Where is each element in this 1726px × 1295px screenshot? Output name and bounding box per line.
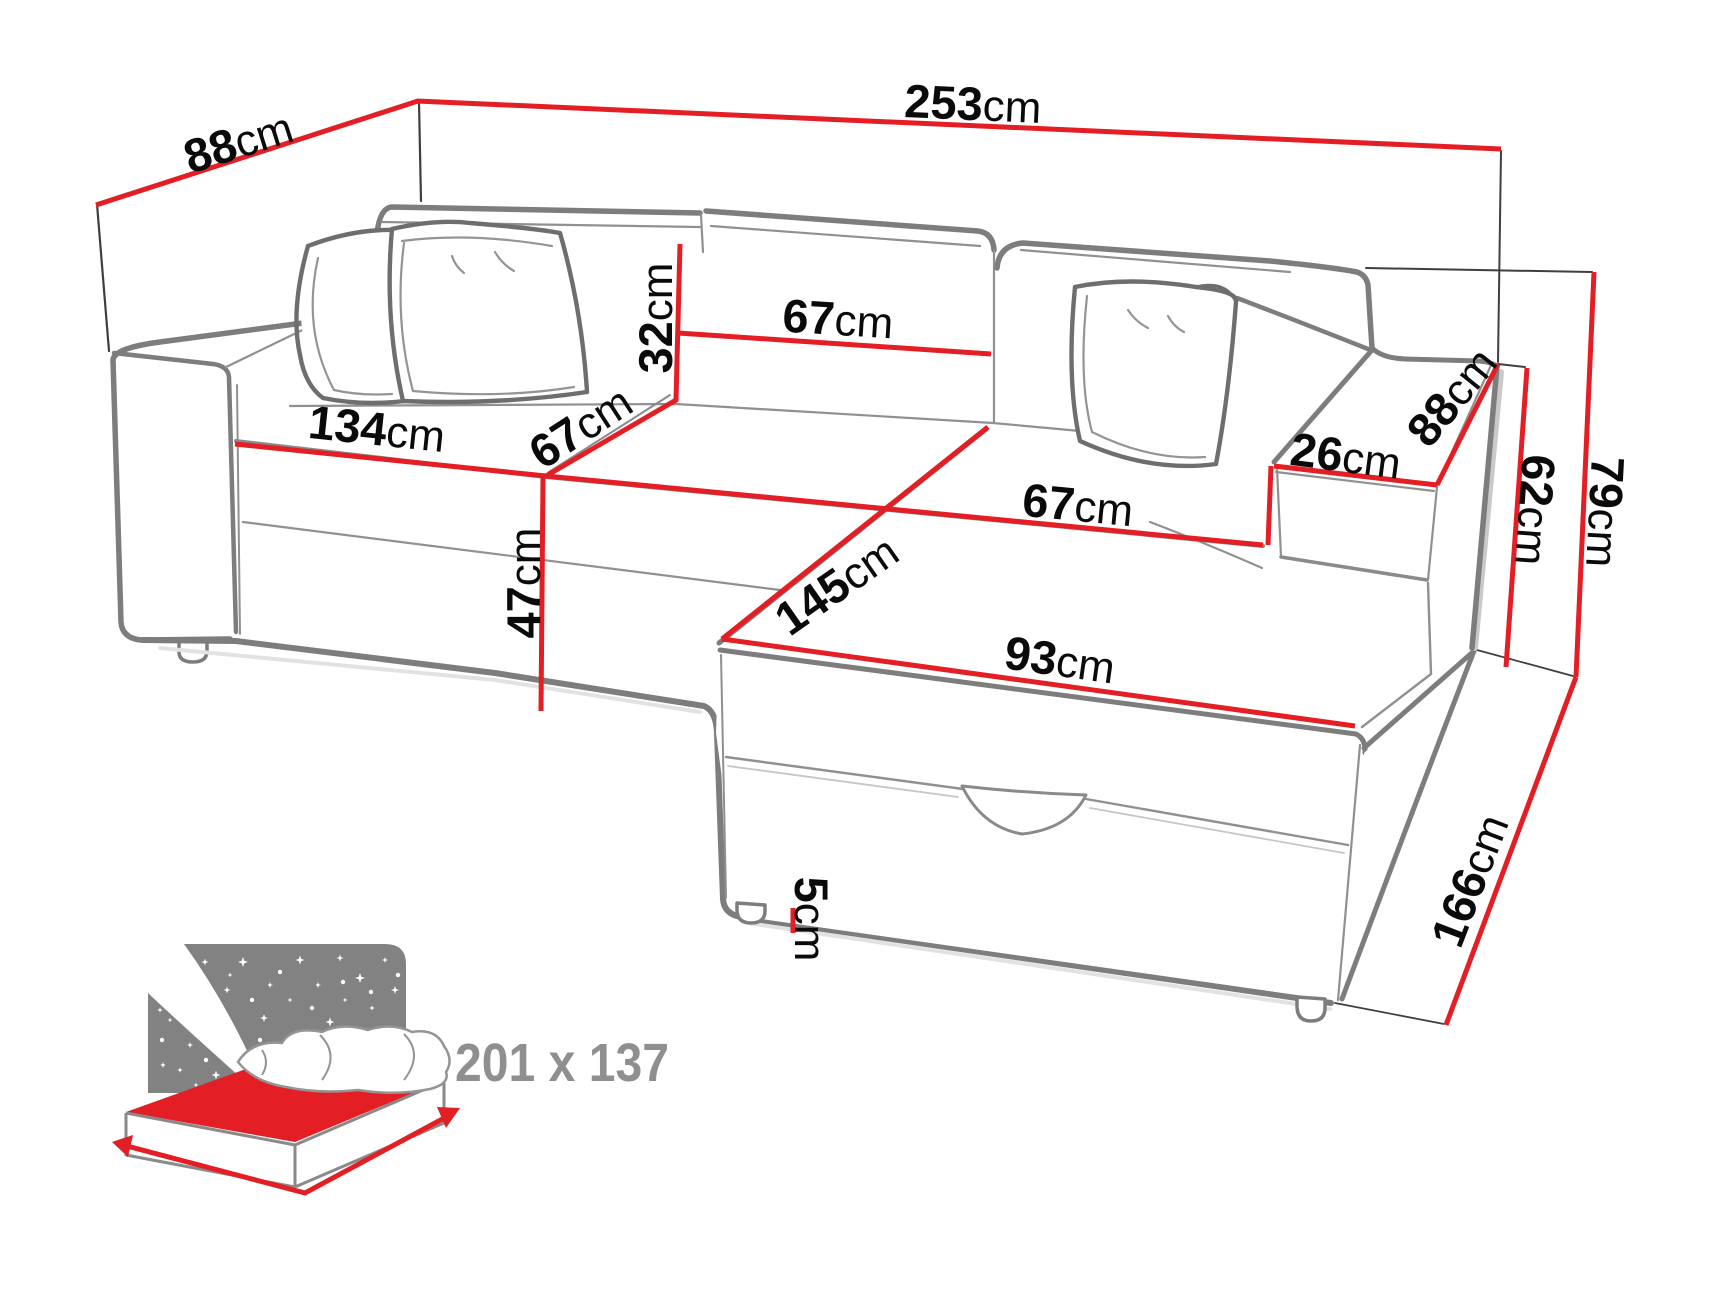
- svg-text:253cm: 253cm: [903, 74, 1042, 133]
- svg-text:79cm: 79cm: [1576, 455, 1635, 569]
- svg-text:5cm: 5cm: [785, 877, 838, 962]
- svg-text:47cm: 47cm: [497, 528, 550, 639]
- svg-text:32cm: 32cm: [629, 263, 682, 374]
- svg-text:201 x 137: 201 x 137: [455, 1033, 669, 1093]
- svg-text:67cm: 67cm: [781, 289, 895, 349]
